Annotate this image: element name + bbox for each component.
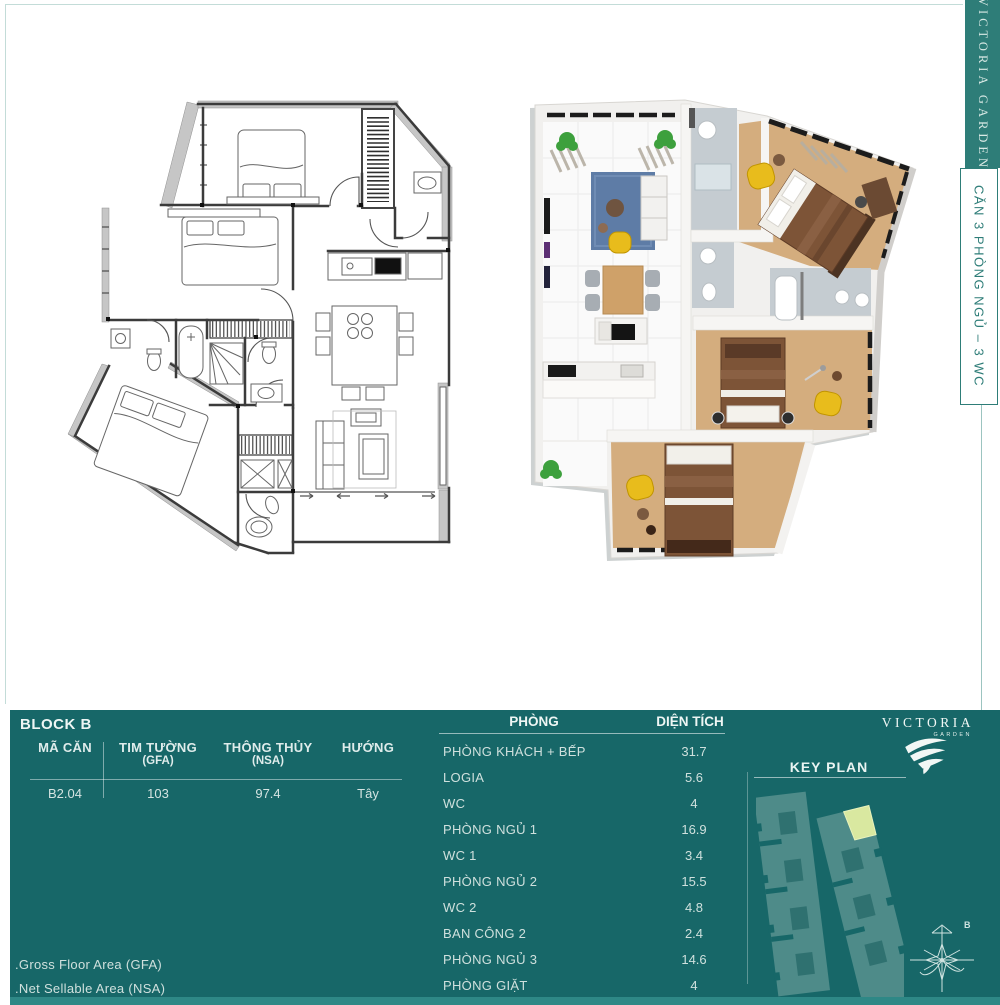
table-row: WC 24.8 <box>435 895 750 921</box>
room-name: LOGIA <box>435 765 641 791</box>
table-row: PHÒNG KHÁCH + BẾP31.7 <box>435 739 750 765</box>
rooms-table-header: PHÒNG DIỆN TÍCH <box>435 714 750 729</box>
table-row: WC 13.4 <box>435 843 750 869</box>
block-info-col-header: THÔNG THỦY (NSA) <box>210 740 326 767</box>
compass-north-label: B <box>964 920 971 930</box>
sidebar-unit-label: CĂN 3 PHÒNG NGỦ – 3 WC <box>972 185 987 387</box>
room-area: 4.8 <box>641 895 747 921</box>
block-title: BLOCK B <box>20 716 92 733</box>
room-area: 4 <box>641 973 747 999</box>
table-row: PHÒNG NGỦ 314.6 <box>435 947 750 973</box>
rooms-table-body: PHÒNG KHÁCH + BẾP31.7 LOGIA5.6 WC4 PHÒNG… <box>435 739 750 999</box>
room-area: 5.6 <box>641 765 747 791</box>
table-row: PHÒNG NGỦ 116.9 <box>435 817 750 843</box>
keyplan-map <box>756 784 904 997</box>
room-name: PHÒNG GIẶT <box>435 973 641 999</box>
panel-bottom-strip <box>10 997 1000 1005</box>
block-info-col-header: MÃ CĂN <box>24 740 106 767</box>
room-name: WC 1 <box>435 843 641 869</box>
room-name: WC <box>435 791 641 817</box>
room-area: 16.9 <box>641 817 747 843</box>
room-name: BAN CÔNG 2 <box>435 921 641 947</box>
keyplan-underline <box>754 777 906 778</box>
table-row: BAN CÔNG 22.4 <box>435 921 750 947</box>
compass-icon <box>902 920 982 997</box>
footnotes: .Gross Floor Area (GFA) .Net Sellable Ar… <box>15 953 165 1001</box>
floorplan-2d <box>50 75 490 665</box>
gfa-value: 103 <box>106 786 210 801</box>
unit-code: B2.04 <box>24 786 106 801</box>
room-area: 2.4 <box>641 921 747 947</box>
room-area: 31.7 <box>641 739 747 765</box>
table-row: PHÒNG NGỦ 215.5 <box>435 869 750 895</box>
logo-title: VICTORIA <box>882 715 974 731</box>
sidebar-divider-line <box>981 405 982 710</box>
frame-left-line <box>5 4 6 704</box>
frame-top-line <box>5 4 963 5</box>
keyplan-section: VICTORIA GARDEN KEY PLAN <box>750 710 1000 997</box>
block-info-col-header: HƯỚNG <box>326 740 410 767</box>
nsa-value: 97.4 <box>210 786 326 801</box>
room-name: PHÒNG NGỦ 1 <box>435 817 641 843</box>
table-row: WC4 <box>435 791 750 817</box>
block-info-value-row: B2.04 103 97.4 Tây <box>24 786 410 801</box>
keyplan-title: KEY PLAN <box>750 759 908 775</box>
sidebar-brand: VICTORIA GARDEN <box>965 0 1000 168</box>
table-row: PHÒNG GIẶT4 <box>435 973 750 999</box>
room-name: PHÒNG NGỦ 2 <box>435 869 641 895</box>
room-name: WC 2 <box>435 895 641 921</box>
room-area: 4 <box>641 791 747 817</box>
room-name: PHÒNG KHÁCH + BẾP <box>435 739 641 765</box>
room-area: 15.5 <box>641 869 747 895</box>
rooms-table-rule <box>439 733 725 734</box>
direction-value: Tây <box>326 786 410 801</box>
room-name: PHÒNG NGỦ 3 <box>435 947 641 973</box>
info-panel: BLOCK B MÃ CĂN TIM TƯỜNG (GFA) THÔNG THỦ… <box>10 710 1000 997</box>
footnote-gfa: .Gross Floor Area (GFA) <box>15 953 165 977</box>
room-area: 3.4 <box>641 843 747 869</box>
room-area: 14.6 <box>641 947 747 973</box>
block-info-col-header: TIM TƯỜNG (GFA) <box>106 740 210 767</box>
panel-vertical-divider <box>747 772 748 984</box>
block-info-header-row: MÃ CĂN TIM TƯỜNG (GFA) THÔNG THỦY (NSA) … <box>24 740 410 767</box>
logo-swoosh-icon <box>902 732 950 778</box>
sidebar-unit-type: CĂN 3 PHÒNG NGỦ – 3 WC <box>960 168 998 405</box>
sidebar-brand-label: VICTORIA GARDEN <box>975 0 990 171</box>
block-info-horizontal-rule <box>30 779 402 780</box>
compass: B <box>902 920 982 997</box>
table-row: LOGIA5.6 <box>435 765 750 791</box>
floorplan-3d <box>515 80 945 660</box>
